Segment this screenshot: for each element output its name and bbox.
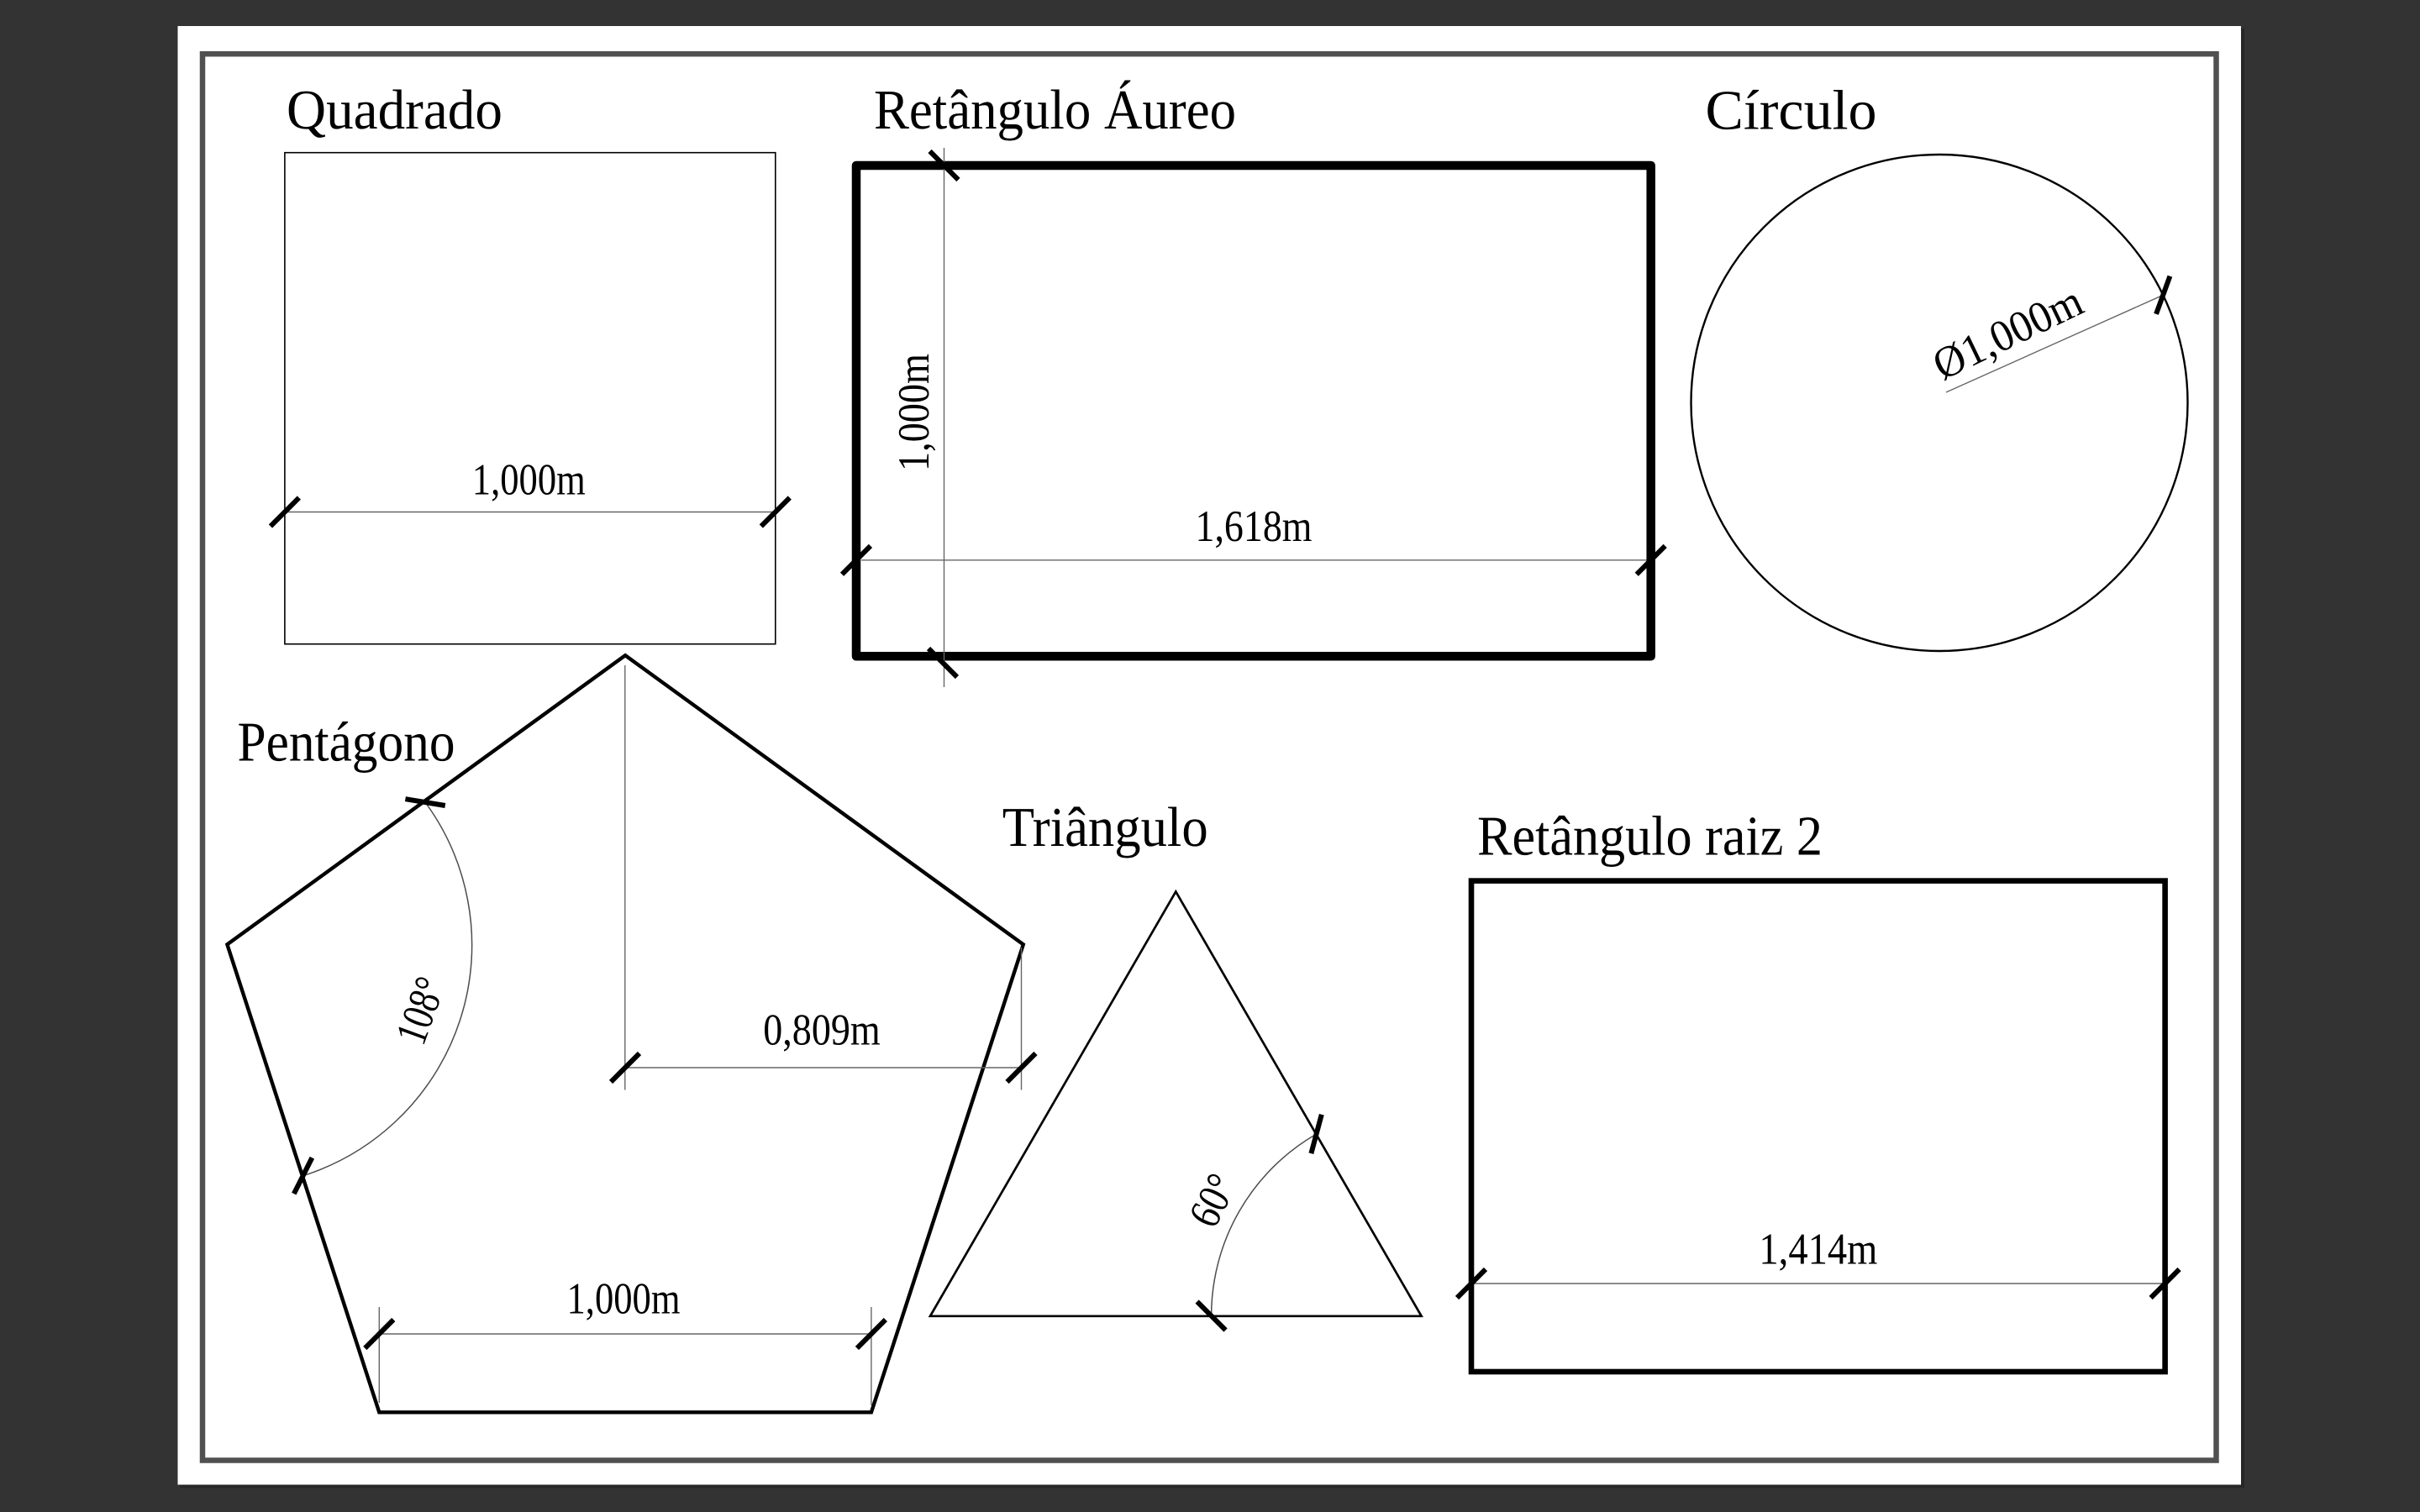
svg-text:1,000m: 1,000m	[567, 1275, 681, 1324]
svg-text:1,000m: 1,000m	[472, 456, 586, 505]
svg-text:1,414m: 1,414m	[1759, 1226, 1877, 1274]
svg-text:Retângulo raiz 2: Retângulo raiz 2	[1477, 806, 1823, 868]
svg-text:1,618m: 1,618m	[1196, 502, 1313, 551]
svg-text:Retângulo Áureo: Retângulo Áureo	[874, 79, 1236, 141]
svg-text:1,000m: 1,000m	[890, 354, 939, 471]
svg-text:Quadrado: Quadrado	[287, 79, 502, 141]
svg-text:Triângulo: Triângulo	[1002, 796, 1208, 858]
svg-text:Pentágono: Pentágono	[238, 711, 455, 774]
svg-text:Círculo: Círculo	[1706, 80, 1877, 142]
svg-text:0,809m: 0,809m	[763, 1006, 881, 1055]
